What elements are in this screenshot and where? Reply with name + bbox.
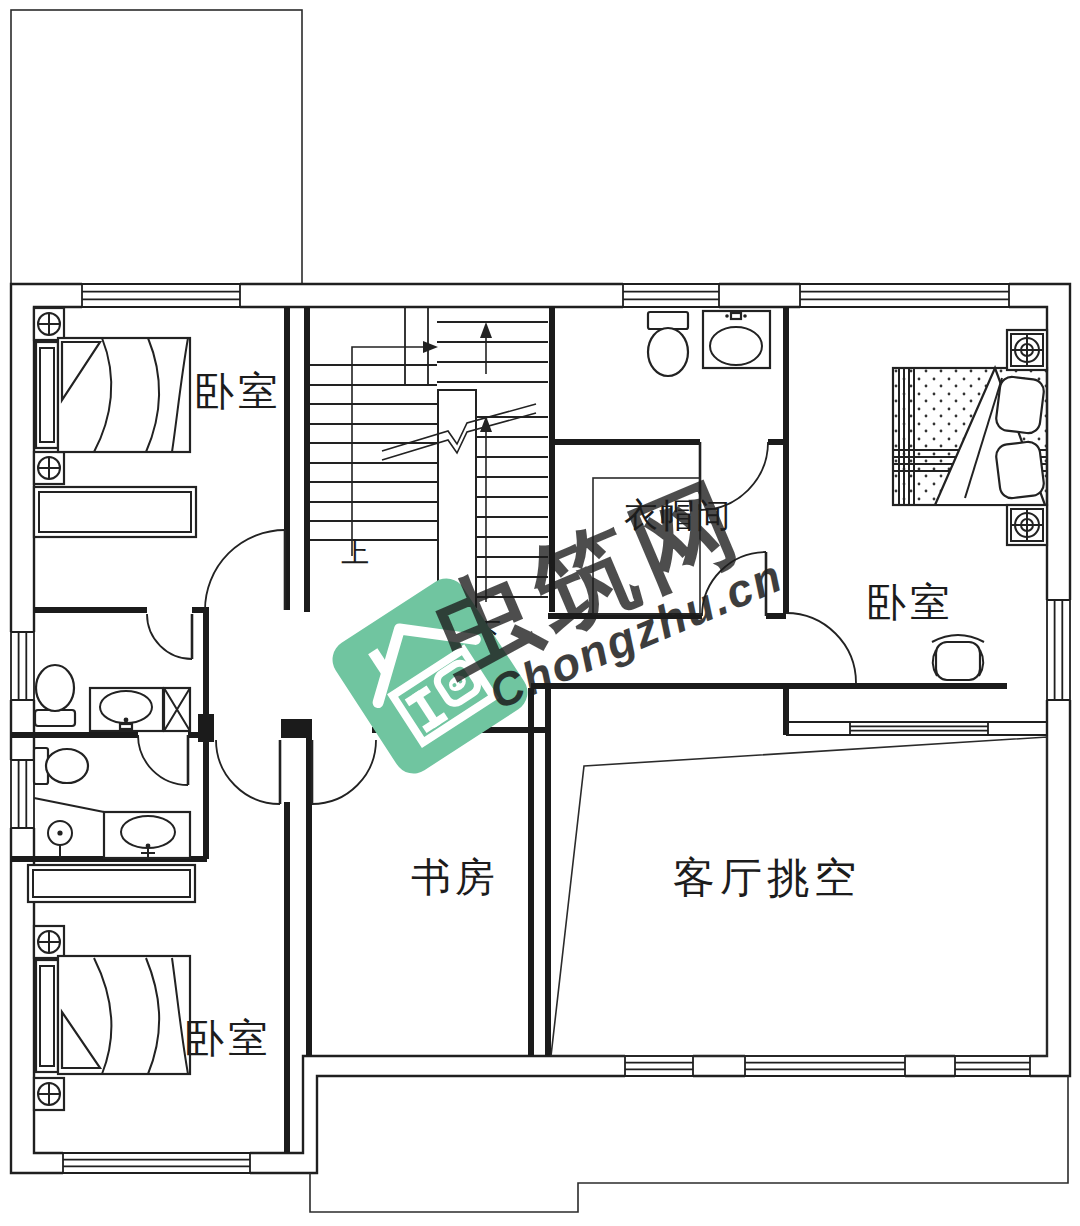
stair-up-label: 上: [341, 537, 369, 568]
vanity-sink-icon: [104, 812, 190, 858]
door-bath2: [138, 735, 188, 785]
wardrobe-icon: [34, 487, 196, 537]
room-label-bedroom-bottom-left: 卧室: [184, 1016, 272, 1060]
sink-icon: [703, 311, 770, 368]
window-left-bath1: [9, 632, 36, 700]
duct-shaft-icon: [164, 688, 190, 731]
wardrobe-icon: [28, 865, 195, 902]
bed-icon: [893, 368, 1047, 505]
nightstand-icon: [34, 452, 64, 484]
window-bottom-2: [745, 1054, 905, 1078]
bedroom1-furniture: [34, 308, 196, 537]
door-bedroom1: [205, 530, 285, 610]
room-label-master-bedroom: 卧室: [866, 580, 954, 624]
vanity-sink-icon: [90, 688, 163, 731]
nightstand-icon: [1007, 330, 1047, 370]
floor-plan-drawing: 上 下: [0, 0, 1080, 1226]
bath3-fixtures: [648, 311, 770, 376]
door-bath1: [147, 614, 192, 659]
balcony-band: [786, 690, 1047, 737]
nightstand-icon: [1007, 505, 1047, 545]
window-left-bath2: [9, 760, 36, 828]
window-top-bath: [623, 282, 719, 309]
door-master-bedroom: [786, 613, 856, 683]
terrace-outline: [11, 10, 302, 284]
lower-roof-outline: [310, 1076, 1068, 1212]
window-top-master-bedroom: [800, 282, 1009, 309]
room-label-study: 书房: [411, 855, 499, 899]
bed-icon: [36, 338, 190, 452]
toilet-icon: [34, 748, 88, 784]
room-labels: 卧室 衣帽间 卧室 书房 客厅挑空 卧室: [184, 369, 954, 1060]
shower-icon: [48, 821, 72, 858]
pillow-icon: [995, 376, 1045, 435]
watermark: 虫筑网 Chongzhu.cn: [325, 462, 790, 781]
shower-partition: [34, 798, 104, 812]
window-bottom-1: [625, 1054, 693, 1078]
room-label-bedroom-top-left: 卧室: [194, 369, 282, 413]
pillow-icon: [995, 441, 1045, 500]
room-label-living-void: 客厅挑空: [673, 854, 861, 901]
toilet-icon: [35, 665, 75, 726]
master-bedroom-furniture: [893, 330, 1047, 680]
bath1-fixtures: [35, 665, 190, 731]
nightstand-icon: [34, 926, 64, 958]
desk-chair-icon: [932, 635, 984, 680]
window-right-master-bedroom: [1045, 600, 1072, 700]
door-bedroom2: [216, 740, 280, 804]
window-top-bedroom1: [82, 282, 240, 309]
toilet-icon: [648, 312, 688, 376]
bath2-fixtures: [34, 748, 190, 858]
door-study: [312, 740, 376, 804]
bed-icon: [36, 956, 190, 1074]
window-bottom-3: [955, 1054, 1030, 1078]
nightstand-icon: [34, 308, 64, 340]
stair-break-line: [382, 404, 536, 460]
bedroom2-furniture: [28, 865, 195, 1110]
nightstand-icon: [34, 1078, 64, 1110]
floor-plan-page: 上 下: [0, 0, 1080, 1226]
window-bottom-bedroom2: [63, 1151, 250, 1175]
stair-direction-arrows: [352, 322, 492, 602]
